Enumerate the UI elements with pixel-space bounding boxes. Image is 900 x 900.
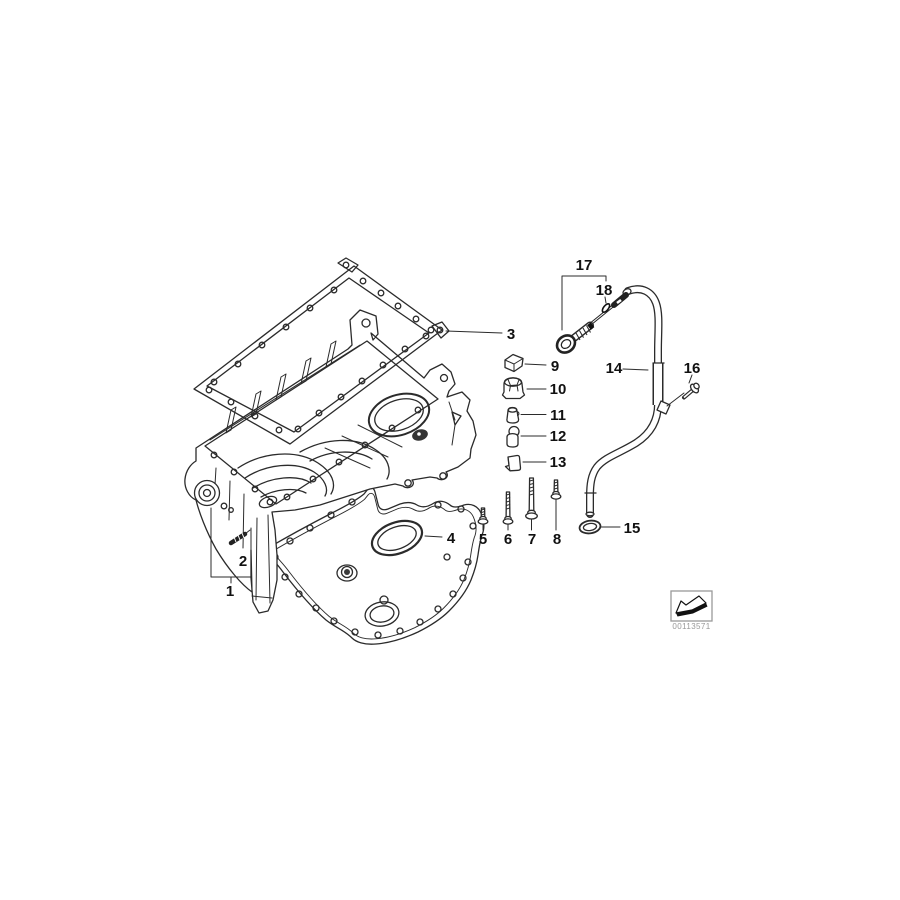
image-id: 00113571 [672, 622, 710, 631]
callout-15: 15 [624, 520, 641, 537]
callout-12: 12 [550, 428, 567, 445]
dipstick-part17 [554, 295, 626, 356]
callout-11: 11 [550, 407, 566, 424]
gasket-boss [337, 565, 357, 581]
callout-13: 13 [550, 454, 567, 471]
bolt-part7 [526, 478, 538, 519]
dipstick-oring-part18 [601, 303, 611, 314]
callout-4: 4 [447, 530, 456, 547]
clip-part13 [506, 455, 521, 470]
lower-pan-gasket [266, 488, 484, 645]
callout-16: 16 [684, 360, 701, 377]
oring-part15 [579, 519, 602, 534]
callout-2: 2 [239, 553, 247, 570]
callout-3: 3 [507, 326, 515, 343]
bolt-part6 [503, 492, 513, 524]
bolt-part16 [684, 382, 700, 397]
bolt-part8 [551, 480, 561, 499]
callout-14: 14 [606, 360, 623, 377]
callout-7: 7 [528, 531, 536, 548]
callout-9: 9 [551, 358, 559, 375]
callout-1: 1 [226, 583, 234, 600]
id-stamp: 00113571 [671, 591, 712, 631]
dipstick-guide-tube-part14 [585, 288, 670, 516]
callout-10: 10 [550, 381, 567, 398]
callout-17: 17 [576, 257, 593, 274]
cap-part10 [503, 378, 525, 399]
parts-diagram-page: 1 2 3 4 5 6 7 8 9 10 11 12 13 14 15 16 1… [0, 0, 900, 900]
callout-6: 6 [504, 531, 512, 548]
callout-5: 5 [479, 531, 487, 548]
plug-part11 [507, 408, 519, 424]
exploded-parts-drawing: 1 2 3 4 5 6 7 8 9 10 11 12 13 14 15 16 1… [0, 0, 900, 900]
callout-8: 8 [553, 531, 561, 548]
cap-part9 [505, 355, 523, 372]
plug-part12 [507, 427, 519, 448]
callout-18: 18 [596, 282, 613, 299]
